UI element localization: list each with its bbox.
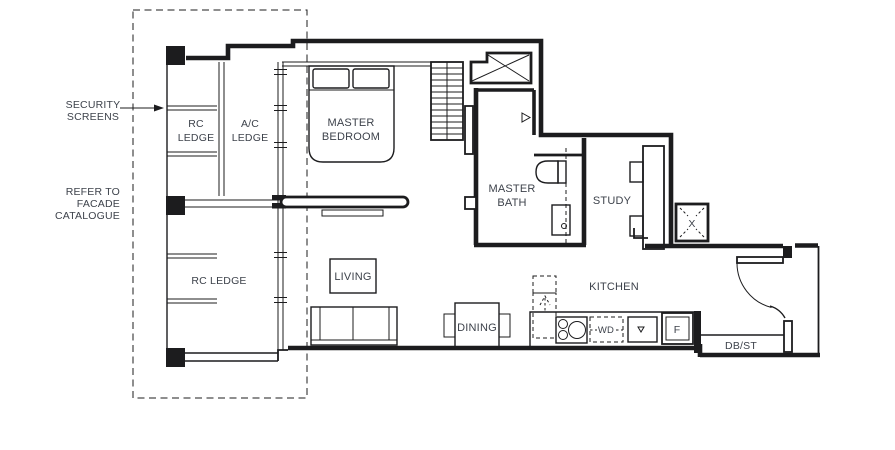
vanity-basin [552,205,570,235]
pillow-left [313,69,349,88]
rc-ledge-bottom-label: RC LEDGE [191,275,246,287]
bedroom-partition [281,197,408,216]
column-top [166,46,185,65]
security-screens-arrowhead-icon [154,105,164,112]
sofa [311,307,397,345]
floor-plan-drawing: SECURITY SCREENS REFER TO FACADE CATALOG… [0,0,895,450]
master-bedroom-label-1: MASTER [327,117,374,129]
ac-unit-box: X [676,204,708,241]
master-bedroom-furniture [309,62,473,162]
facade-note-label-3: CATALOGUE [55,210,120,222]
dbst-label: DB/ST [725,340,757,352]
ledge-divider-horizontal [184,200,278,207]
dining-chair-left [444,314,455,337]
toilet-bowl [536,161,558,183]
rc-ledge-top-label-1: RC [188,118,204,130]
entry: DB/ST [700,257,785,352]
dining-label: DINING [457,322,497,334]
partition-wall-bar [281,197,408,207]
washer-dryer-label: WD [598,325,614,336]
study-chair-bottom [630,216,643,236]
annotation-facade-note: REFER TO FACADE CATALOGUE [55,186,120,222]
ledge-divider-vertical [219,62,224,196]
tv-console [322,210,383,216]
hob-burner-small-1 [559,320,568,329]
kitchen-label: KITCHEN [589,281,639,293]
security-screen-lines-top [167,106,217,156]
ac-ledge-label-1: A/C [241,118,259,130]
kitchen-cabinet-dashed-top [533,276,556,293]
sofa-cushion-lines [311,307,397,340]
floor-plan-page: SECURITY SCREENS REFER TO FACADE CATALOG… [0,0,895,450]
study-label: STUDY [593,195,632,207]
study-furniture [630,146,664,249]
sliding-door [465,106,473,154]
dining-chair-right [499,314,510,337]
shower-cross-lines [472,55,529,81]
fridge-label: F [674,324,681,336]
entry-door-open-leaf [770,306,785,318]
master-bath-label-2: BATH [497,197,526,209]
entry-door-leaf [737,257,783,263]
bath-door-stop [465,197,476,209]
facade-note-label-2: FACADE [77,198,120,210]
wall-kitchen-dbst [694,311,701,353]
dbst-jamb [784,321,792,352]
hob-burner-large [569,322,586,339]
toilet-cistern [558,161,566,183]
ac-unit-label: X [688,218,695,230]
pillow-right [353,69,389,88]
door-jamb-top [783,246,792,258]
study-chair-top [630,162,643,182]
sink-drain-icon [638,327,644,332]
wall-south-step [278,350,288,361]
column-mid [166,196,185,215]
master-bath-label-1: MASTER [488,183,535,195]
security-screens-label-2: SCREENS [67,111,119,123]
ledge-bottom-edge [184,353,278,361]
entry-door-swing-arc [737,263,772,308]
living-label: LIVING [334,271,371,283]
annotation-security-screens: SECURITY SCREENS [66,99,164,123]
window-mullion-ticks [274,70,287,303]
interior-walls [465,88,792,353]
columns [166,46,185,367]
facade-note-label-1: REFER TO [66,186,120,198]
hob-burner-small-2 [559,331,568,340]
shower-head-icon [522,113,530,122]
column-bottom [166,348,185,367]
master-bedroom-label-2: BEDROOM [322,131,380,143]
ac-ledge-label-2: LEDGE [232,132,269,144]
rc-ledge-top-label-2: LEDGE [178,132,215,144]
security-screens-label-1: SECURITY [66,99,121,111]
study-desk [643,146,664,249]
